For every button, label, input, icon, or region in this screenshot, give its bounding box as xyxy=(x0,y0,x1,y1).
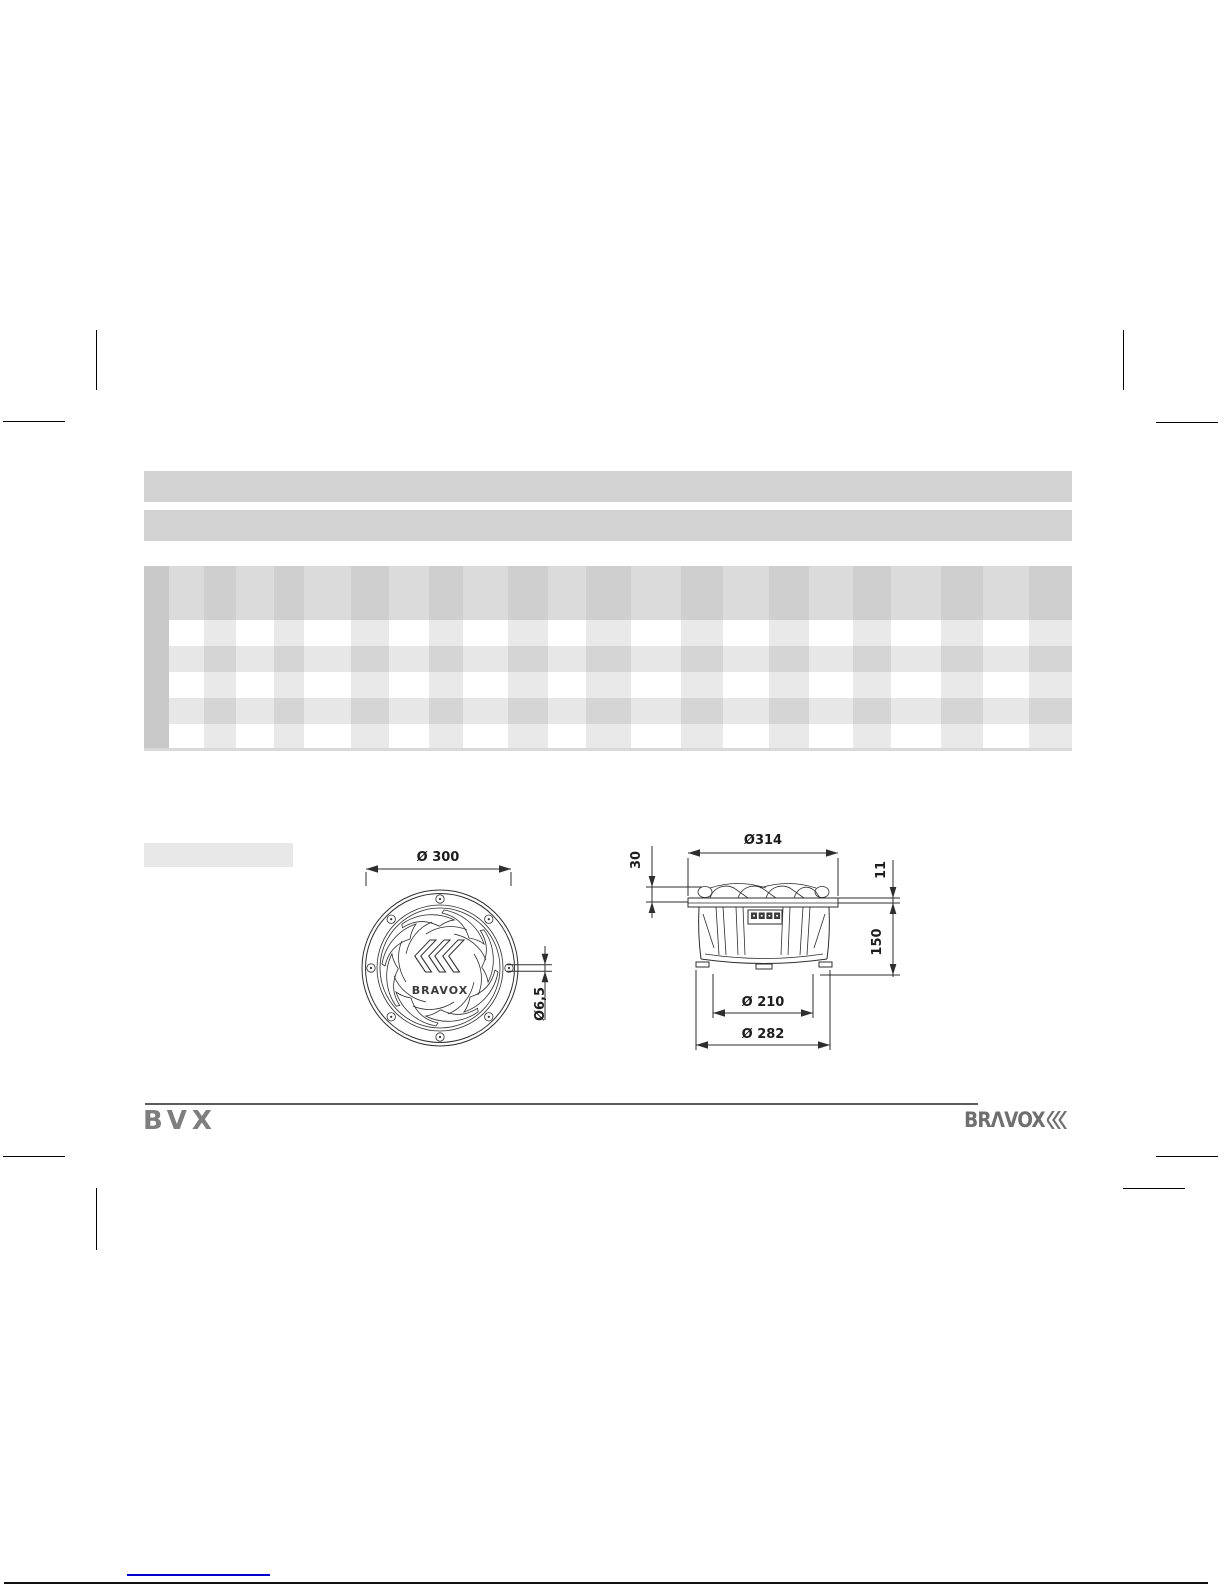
title-bar-placeholder xyxy=(144,471,1072,502)
table-cell xyxy=(236,724,274,748)
table-cell xyxy=(983,566,1029,620)
table-label-cell xyxy=(144,672,169,698)
side-dim-150-label: 150 xyxy=(870,928,885,955)
table-cell xyxy=(631,646,681,672)
side-dim-282: Ø 282 xyxy=(696,970,830,1050)
table-cell xyxy=(236,672,274,698)
table-cell xyxy=(304,566,351,620)
table-cell xyxy=(631,698,681,724)
table-label-cell xyxy=(144,566,169,620)
table-cell xyxy=(304,724,351,748)
table-cell xyxy=(429,672,463,698)
table-cell xyxy=(169,646,204,672)
side-dim-314: Ø314 xyxy=(688,833,838,896)
table-cell xyxy=(891,620,941,646)
table-cell xyxy=(274,566,304,620)
table-cell xyxy=(941,724,983,748)
front-dim-300-label: Ø 300 xyxy=(417,850,460,865)
table-cell xyxy=(586,646,631,672)
table-cell xyxy=(769,620,809,646)
table-cell xyxy=(723,724,769,748)
table-cell xyxy=(941,698,983,724)
table-cell xyxy=(463,566,508,620)
table-cell xyxy=(429,698,463,724)
table-cell xyxy=(891,698,941,724)
table-cell xyxy=(304,646,351,672)
side-dim-30-label: 30 xyxy=(629,851,644,869)
table-cell xyxy=(274,672,304,698)
table-cell xyxy=(548,620,586,646)
table-cell xyxy=(681,724,723,748)
table-cell xyxy=(1029,646,1072,672)
table-cell xyxy=(1029,698,1072,724)
table-cell xyxy=(891,566,941,620)
table-cell xyxy=(351,620,389,646)
table-cell xyxy=(983,646,1029,672)
table-cell xyxy=(304,620,351,646)
table-cell xyxy=(681,646,723,672)
crop-mark-bottom-right-v xyxy=(1123,1188,1185,1189)
table-cell xyxy=(236,620,274,646)
table-cell xyxy=(681,566,723,620)
table-cell xyxy=(809,646,853,672)
screw-holes xyxy=(367,895,513,1041)
table-cell xyxy=(463,672,508,698)
table-cell xyxy=(853,566,891,620)
table-cell xyxy=(389,566,429,620)
table-cell xyxy=(853,620,891,646)
table-cell xyxy=(941,620,983,646)
table-cell xyxy=(548,672,586,698)
table-cell xyxy=(274,620,304,646)
table-cell xyxy=(389,620,429,646)
table-cell xyxy=(508,646,548,672)
grille-swirl-pattern xyxy=(368,896,512,1040)
table-cell xyxy=(1029,620,1072,646)
brand-logo: BRΛVOX xyxy=(965,1108,1068,1132)
table-cell xyxy=(463,724,508,748)
terminal-block xyxy=(748,910,782,924)
table-cell xyxy=(389,724,429,748)
crop-mark-top-right-v xyxy=(1123,330,1124,390)
table-cell xyxy=(853,672,891,698)
table-cell xyxy=(204,566,236,620)
table-row xyxy=(144,566,1072,620)
table-cell xyxy=(941,672,983,698)
document-page: Ø 300 xyxy=(0,0,1225,1585)
table-cell xyxy=(1029,724,1072,748)
table-cell xyxy=(508,620,548,646)
table-cell xyxy=(389,646,429,672)
table-cell xyxy=(681,698,723,724)
table-cell xyxy=(983,620,1029,646)
table-cell xyxy=(809,698,853,724)
table-cell xyxy=(204,698,236,724)
table-cell xyxy=(809,672,853,698)
side-view-drawing: Ø314 30 xyxy=(610,822,910,1057)
table-cell xyxy=(389,698,429,724)
table-label-cell xyxy=(144,724,169,748)
table-cell xyxy=(463,646,508,672)
table-label-cell xyxy=(144,698,169,724)
table-cell xyxy=(351,566,389,620)
table-cell xyxy=(351,724,389,748)
table-cell xyxy=(236,566,274,620)
table-cell xyxy=(809,566,853,620)
table-cell xyxy=(204,724,236,748)
table-cell xyxy=(508,566,548,620)
table-cell xyxy=(169,620,204,646)
table-cell xyxy=(891,724,941,748)
crop-mark-top-right-h xyxy=(1156,422,1218,423)
table-cell xyxy=(429,566,463,620)
table-cell xyxy=(351,672,389,698)
crop-mark-top-left-h xyxy=(3,421,65,422)
table-cell xyxy=(983,672,1029,698)
table-cell xyxy=(304,672,351,698)
page-bottom-edge xyxy=(4,1582,1208,1584)
front-dim-65-label: Ø6,5 xyxy=(533,987,548,1021)
table-cell xyxy=(769,672,809,698)
table-cell xyxy=(891,646,941,672)
table-cell xyxy=(586,672,631,698)
table-cell xyxy=(586,566,631,620)
table-cell xyxy=(681,672,723,698)
mounting-flange xyxy=(688,898,838,907)
table-cell xyxy=(169,672,204,698)
table-cell xyxy=(769,646,809,672)
table-cell xyxy=(631,620,681,646)
table-cell xyxy=(723,698,769,724)
side-dim-314-label: Ø314 xyxy=(744,833,782,848)
table-cell xyxy=(463,620,508,646)
table-row xyxy=(144,620,1072,646)
side-dim-282-label: Ø 282 xyxy=(742,1027,785,1042)
table-cell xyxy=(508,698,548,724)
table-cell xyxy=(274,724,304,748)
front-dim-300: Ø 300 xyxy=(366,850,511,886)
table-cell xyxy=(723,646,769,672)
table-cell xyxy=(853,698,891,724)
table-cell xyxy=(1029,672,1072,698)
table-cell xyxy=(941,646,983,672)
side-dim-210-label: Ø 210 xyxy=(742,995,785,1010)
table-cell xyxy=(204,620,236,646)
table-cell xyxy=(463,698,508,724)
spec-table-bottom-border xyxy=(144,748,1072,751)
table-label-cell xyxy=(144,646,169,672)
table-cell xyxy=(548,646,586,672)
table-row xyxy=(144,672,1072,698)
table-cell xyxy=(351,698,389,724)
brand-logo-text: BRΛVOX xyxy=(965,1108,1046,1132)
table-cell xyxy=(941,566,983,620)
crop-mark-top-left-v xyxy=(96,330,97,390)
table-cell xyxy=(769,566,809,620)
table-row xyxy=(144,646,1072,672)
table-cell xyxy=(429,646,463,672)
table-label-cell xyxy=(144,620,169,646)
table-cell xyxy=(204,672,236,698)
side-dim-11-150: 11 150 xyxy=(820,860,900,977)
table-cell xyxy=(429,724,463,748)
table-cell xyxy=(809,724,853,748)
table-cell xyxy=(769,724,809,748)
surround-profile xyxy=(698,884,829,899)
side-dim-11-label: 11 xyxy=(874,861,889,879)
footer-link-underline[interactable] xyxy=(127,1574,270,1576)
product-line-logo: BVX xyxy=(143,1106,217,1136)
table-cell xyxy=(769,698,809,724)
table-cell xyxy=(169,566,204,620)
table-cell xyxy=(853,646,891,672)
table-cell xyxy=(548,698,586,724)
table-cell xyxy=(548,724,586,748)
table-cell xyxy=(351,646,389,672)
table-cell xyxy=(809,620,853,646)
table-cell xyxy=(274,698,304,724)
table-cell xyxy=(723,620,769,646)
table-row xyxy=(144,724,1072,748)
table-cell xyxy=(631,724,681,748)
footer-rule xyxy=(145,1103,978,1105)
front-view-drawing: Ø 300 xyxy=(330,828,570,1063)
table-row xyxy=(144,698,1072,724)
table-cell xyxy=(586,620,631,646)
side-dim-210: Ø 210 xyxy=(713,974,813,1018)
table-cell xyxy=(723,672,769,698)
section-label-placeholder xyxy=(144,843,293,867)
crop-mark-bottom-left-v xyxy=(96,1188,97,1250)
table-cell xyxy=(304,698,351,724)
spec-table-placeholder xyxy=(144,566,1072,748)
table-cell xyxy=(1029,566,1072,620)
table-cell xyxy=(236,698,274,724)
table-cell xyxy=(548,566,586,620)
table-cell xyxy=(681,620,723,646)
table-cell xyxy=(169,724,204,748)
table-cell xyxy=(631,566,681,620)
table-cell xyxy=(983,724,1029,748)
table-cell xyxy=(204,646,236,672)
front-logo-text: BRAVOX xyxy=(412,984,468,997)
bravox-chevrons-icon xyxy=(413,940,464,972)
table-cell xyxy=(508,724,548,748)
table-cell xyxy=(983,698,1029,724)
table-cell xyxy=(274,646,304,672)
table-cell xyxy=(891,672,941,698)
table-cell xyxy=(169,698,204,724)
table-cell xyxy=(586,698,631,724)
table-cell xyxy=(236,646,274,672)
subtitle-bar-placeholder xyxy=(144,510,1072,541)
table-cell xyxy=(508,672,548,698)
table-cell xyxy=(723,566,769,620)
crop-mark-bottom-left-h xyxy=(3,1156,65,1157)
table-cell xyxy=(853,724,891,748)
brand-chevrons-icon xyxy=(1047,1111,1068,1129)
table-cell xyxy=(631,672,681,698)
table-cell xyxy=(586,724,631,748)
table-cell xyxy=(429,620,463,646)
table-cell xyxy=(389,672,429,698)
crop-mark-bottom-right-h xyxy=(1156,1156,1218,1157)
